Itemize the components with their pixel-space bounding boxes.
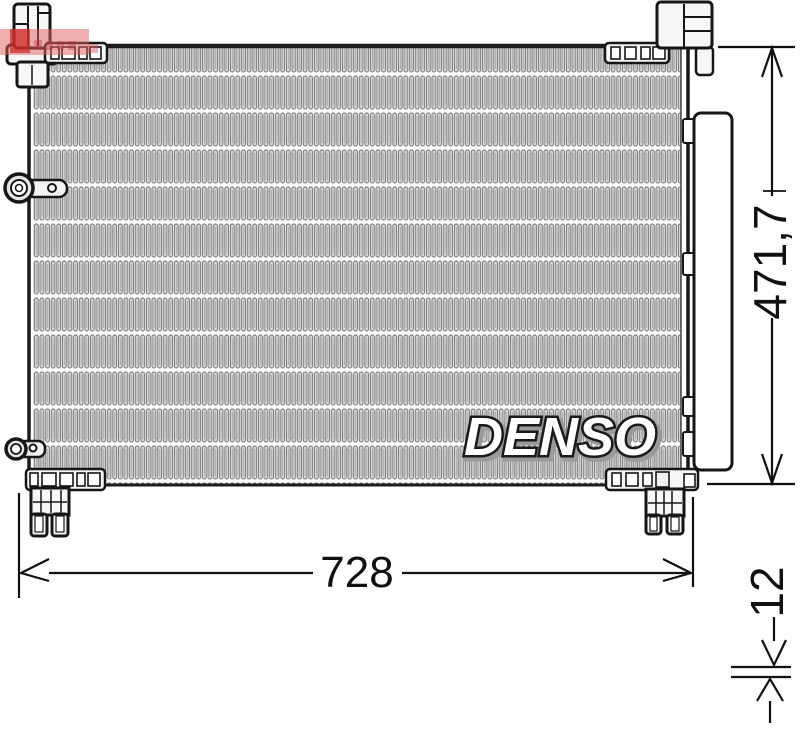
condenser-drawing-page: DENSO DENSO 471,7 728 12 xyxy=(0,0,800,734)
arrowhead-down xyxy=(762,640,786,665)
dimension-height-label: 471,7 xyxy=(744,204,796,319)
bracket-slot xyxy=(30,473,38,486)
brand-logo: DENSO DENSO xyxy=(464,407,659,470)
watermark-mark xyxy=(46,41,53,50)
watermark xyxy=(0,29,98,55)
dimension-depth xyxy=(731,617,791,723)
fitting-port xyxy=(16,185,23,192)
mounting-foot-slot xyxy=(671,517,679,531)
watermark-mark xyxy=(34,40,42,50)
mounting-foot-slot xyxy=(56,516,64,532)
bracket-tab xyxy=(696,47,713,75)
watermark-mark xyxy=(57,41,64,50)
fitting-hole xyxy=(30,445,37,452)
brand-logo-text: DENSO xyxy=(464,407,656,467)
drier-body xyxy=(694,113,732,470)
bracket-slot xyxy=(625,47,636,59)
bottom-left-bracket xyxy=(26,469,105,536)
watermark-mark xyxy=(88,44,98,53)
bracket-slot xyxy=(611,47,620,59)
top-right-bracket xyxy=(605,2,713,75)
watermark-mark xyxy=(68,41,76,50)
bracket-slot xyxy=(60,473,73,486)
bracket-slot xyxy=(626,473,638,486)
watermark-mark xyxy=(10,29,30,53)
pipe-fitting-lower xyxy=(6,439,45,459)
bottom-right-bracket xyxy=(606,469,698,534)
bracket-slot xyxy=(77,473,85,486)
bracket-slot xyxy=(684,474,695,487)
mounting-foot-slot xyxy=(650,517,657,531)
fitting-hole xyxy=(48,184,56,192)
dimension-width-label: 728 xyxy=(320,548,393,597)
arrowhead-right xyxy=(663,559,691,581)
arrowhead-up xyxy=(757,679,783,701)
arrowhead-left xyxy=(21,559,49,581)
bracket-slot xyxy=(656,472,669,487)
receiver-drier xyxy=(683,48,732,470)
dimension-depth-label: 12 xyxy=(741,566,793,617)
bracket-slot xyxy=(42,473,56,486)
condenser-technical-drawing: DENSO DENSO 471,7 728 12 xyxy=(0,0,800,734)
bracket-slot xyxy=(612,473,621,486)
bracket-slot xyxy=(643,473,652,486)
bracket-slot xyxy=(641,47,650,59)
fitting-port xyxy=(11,444,21,454)
mounting-foot-slot xyxy=(35,516,43,532)
bracket-slot xyxy=(88,473,100,486)
